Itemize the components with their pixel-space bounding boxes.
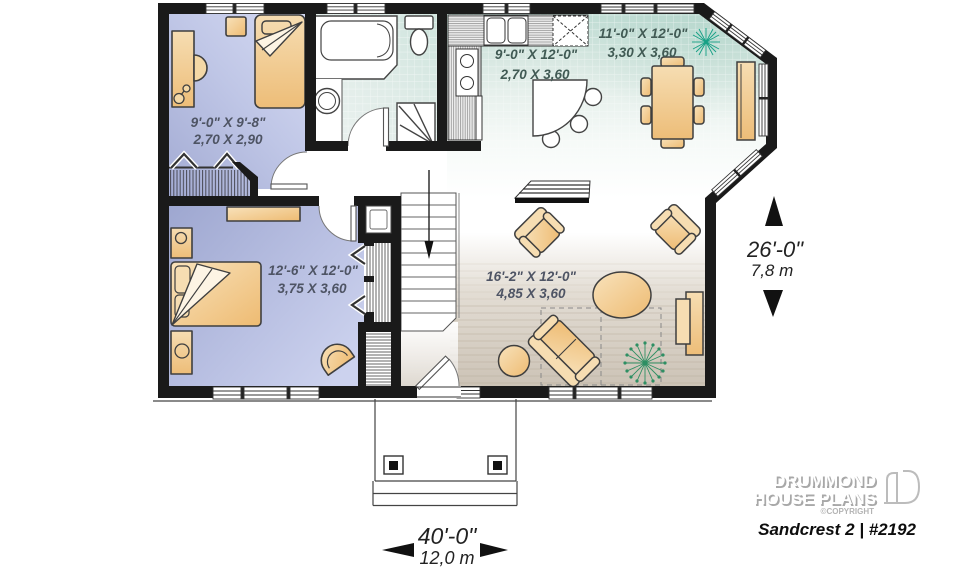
svg-text:3,75 X 3,60: 3,75 X 3,60 bbox=[277, 281, 347, 296]
svg-text:12,0 m: 12,0 m bbox=[419, 548, 474, 568]
svg-text:7,8 m: 7,8 m bbox=[751, 261, 794, 280]
svg-text:16'-2" X 12'-0": 16'-2" X 12'-0" bbox=[486, 269, 576, 284]
svg-text:12'-6" X 12'-0": 12'-6" X 12'-0" bbox=[268, 263, 358, 278]
svg-text:2,70 X 2,90: 2,70 X 2,90 bbox=[192, 132, 263, 147]
svg-text:Sandcrest 2 | #2192: Sandcrest 2 | #2192 bbox=[758, 520, 916, 539]
svg-text:26'-0": 26'-0" bbox=[746, 237, 804, 262]
svg-text:40'-0": 40'-0" bbox=[418, 523, 478, 549]
svg-text:2,70 X 3,60: 2,70 X 3,60 bbox=[499, 67, 570, 82]
svg-text:©COPYRIGHT: ©COPYRIGHT bbox=[821, 507, 875, 516]
svg-text:9'-0" X 9'-8": 9'-0" X 9'-8" bbox=[191, 115, 266, 130]
svg-text:DRUMMOND: DRUMMOND bbox=[773, 471, 876, 490]
svg-text:HOUSE PLANS: HOUSE PLANS bbox=[753, 489, 876, 508]
svg-text:11'-0" X 12'-0": 11'-0" X 12'-0" bbox=[599, 26, 688, 41]
svg-text:9'-0" X 12'-0": 9'-0" X 12'-0" bbox=[495, 47, 578, 62]
svg-text:3,30 X 3,60: 3,30 X 3,60 bbox=[607, 45, 677, 60]
svg-text:4,85 X 3,60: 4,85 X 3,60 bbox=[495, 286, 566, 301]
